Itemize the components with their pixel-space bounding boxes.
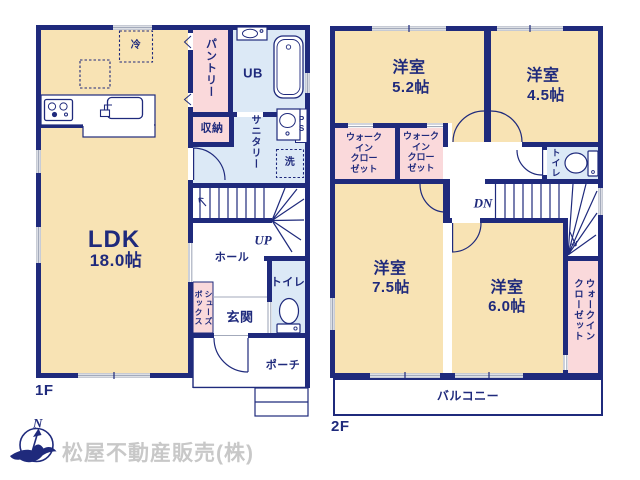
ldk-label: LDK [88, 226, 140, 254]
room-4-5-label: 洋室 [526, 68, 559, 87]
wic-c-label: クローゼット ウォークイン [573, 279, 594, 342]
hall-label: ホール [215, 252, 250, 265]
shoebox-label-right-col: シューズ [204, 290, 212, 326]
toilet-1f-label: トイレ [271, 277, 306, 290]
wic-c-label-right-col: ウォークイン [584, 279, 594, 342]
wic-c-label-left-col: クローゼット [573, 279, 583, 342]
stairs-down-label: DN [474, 195, 493, 210]
pipe-space-label: P S [299, 116, 304, 134]
compass-icon [10, 429, 57, 463]
entrance-label: 玄関 [226, 309, 253, 324]
company-watermark: 松屋不動産販売(株) [62, 437, 254, 467]
ldk-size-label: 18.0帖 [90, 251, 143, 271]
stove-icon [45, 100, 73, 121]
room-7-5-label: 洋室 [373, 261, 406, 280]
laundry-label: 洗 [285, 157, 296, 169]
north-label: N [33, 415, 43, 430]
ldk-room [41, 30, 188, 373]
unit-bath-label: UB [243, 65, 263, 80]
porch-label: ポーチ [266, 360, 301, 373]
shoebox-label: ボックス シューズ [194, 290, 212, 326]
storage-label: 収納 [201, 123, 224, 136]
room-6-0-label: 洋室 [490, 280, 523, 299]
wic-b-label: ウォーク イン クロー ゼット [403, 131, 439, 173]
room-5-2-size: 5.2帖 [392, 79, 430, 97]
room-4-5-size: 4.5帖 [527, 87, 565, 105]
wic-a-label: ウォーク イン クロー ゼット [346, 132, 382, 174]
floor1-label: 1F [35, 382, 54, 400]
toilet-2f-label: トイレ [551, 148, 560, 178]
balcony-label: バルコニー [437, 389, 499, 403]
sanitary-label: サニタリー [249, 115, 259, 170]
washbasin-icon [277, 109, 300, 140]
fridge-label: 冷 [131, 40, 142, 52]
room-5-2-label: 洋室 [392, 60, 425, 79]
room-7-5-size: 7.5帖 [372, 279, 410, 297]
floorplan-page: LDK 18.0帖 冷 パントリー UB 収納 サニタリー P S 洗 UP ホ… [0, 0, 640, 480]
floor2-label: 2F [331, 418, 350, 436]
shoebox-label-left-col: ボックス [194, 290, 202, 326]
second-floor-fills [330, 26, 603, 378]
pantry-label: パントリー [205, 38, 216, 98]
stairs-up-label: UP [254, 232, 271, 247]
room-6-0-size: 6.0帖 [488, 298, 526, 316]
